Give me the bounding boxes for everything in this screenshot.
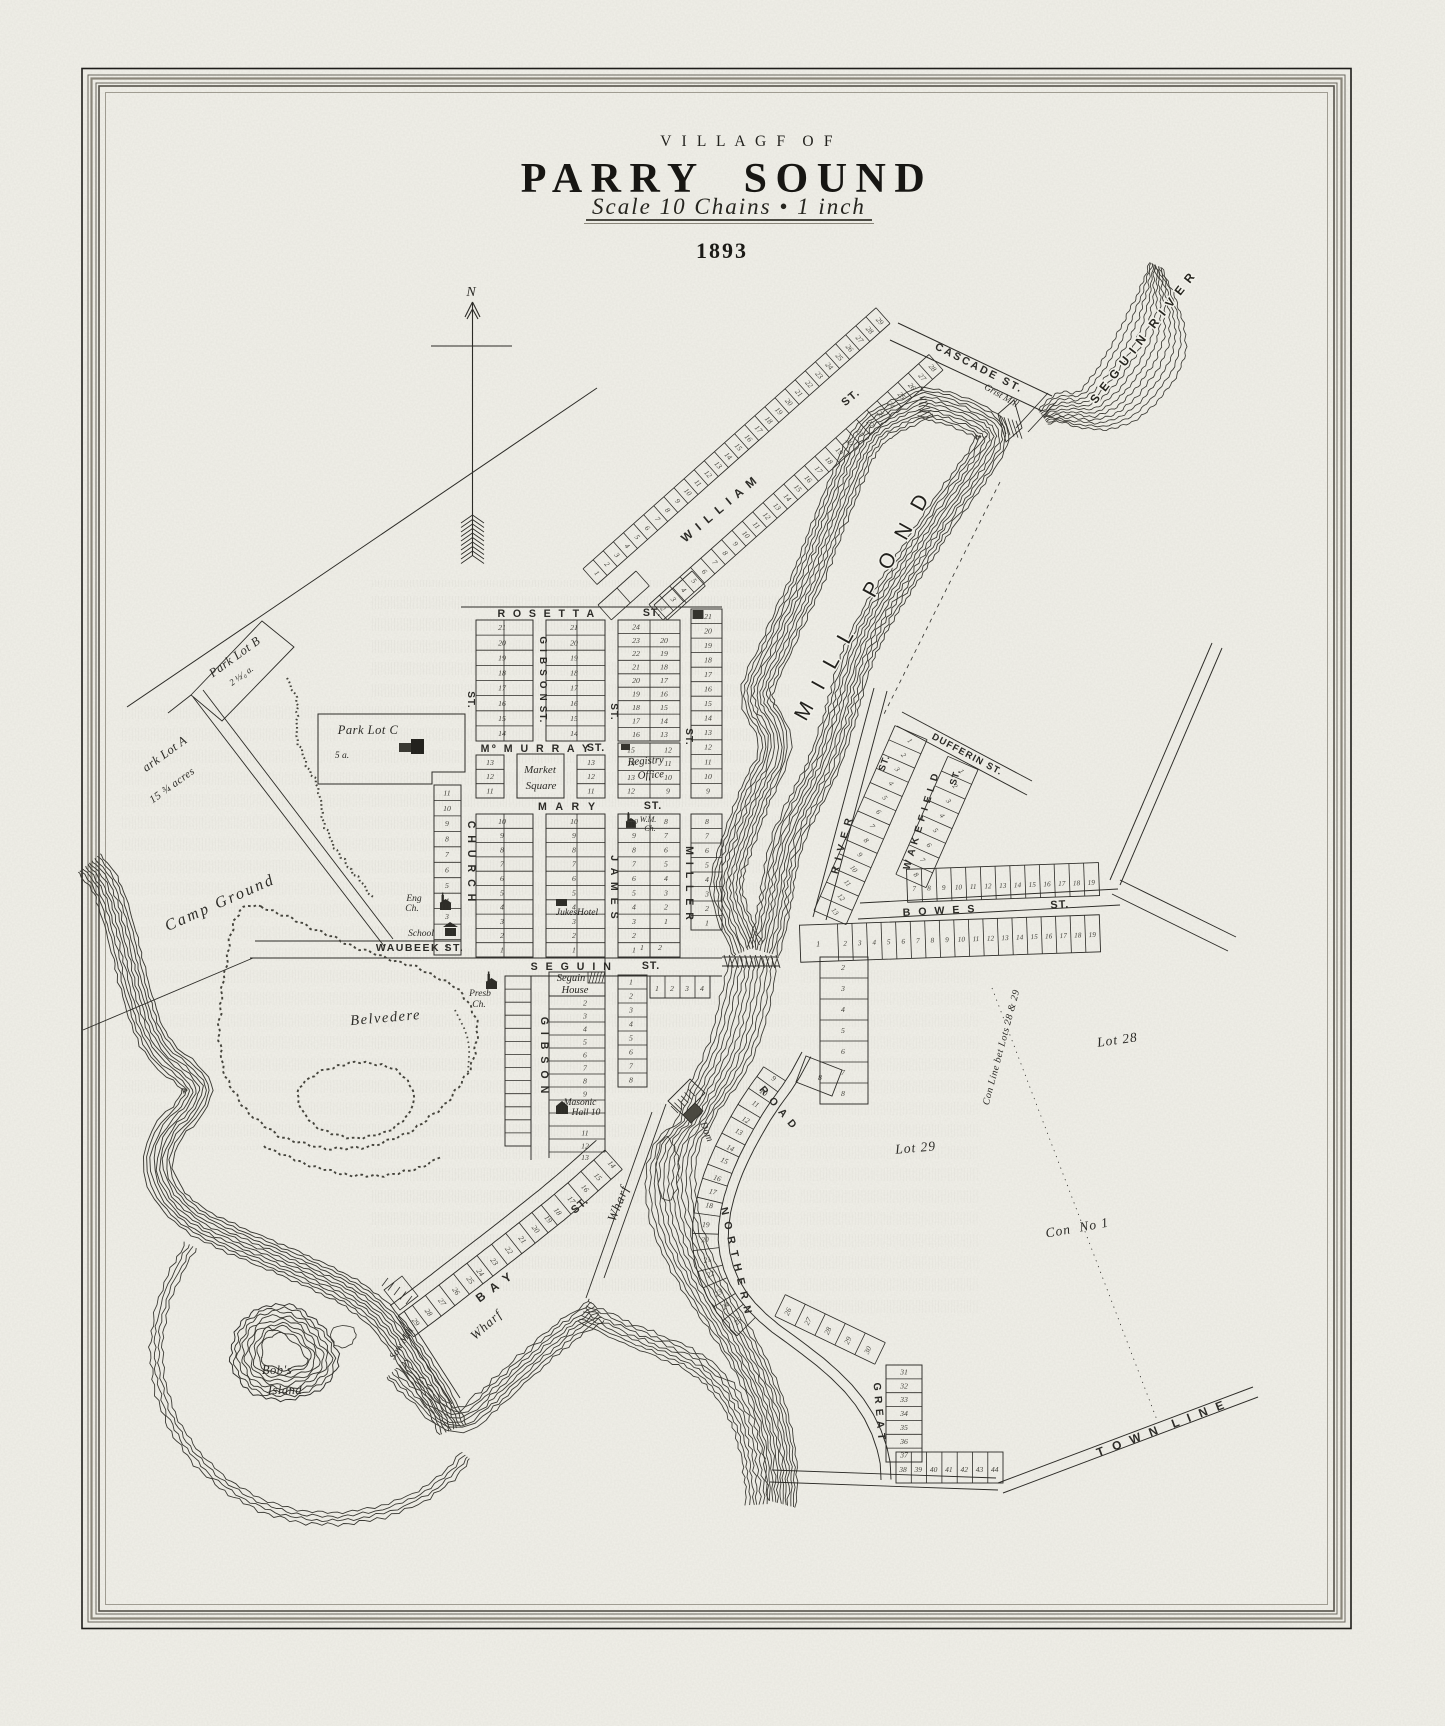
svg-text:33: 33 [899, 1395, 908, 1404]
svg-text:34: 34 [899, 1409, 908, 1418]
svg-text:16: 16 [1045, 932, 1053, 940]
svg-text:41: 41 [945, 1465, 953, 1474]
svg-text:36: 36 [899, 1437, 908, 1446]
svg-text:40: 40 [930, 1465, 938, 1474]
svg-text:17: 17 [1058, 880, 1066, 888]
svg-text:39: 39 [914, 1465, 923, 1474]
svg-text:15: 15 [1029, 881, 1037, 889]
svg-text:1: 1 [816, 940, 820, 949]
svg-text:35: 35 [899, 1423, 908, 1432]
svg-text:13: 13 [1001, 934, 1009, 942]
svg-text:9: 9 [945, 936, 949, 944]
svg-text:12: 12 [984, 882, 992, 890]
svg-text:16: 16 [1043, 880, 1051, 888]
svg-text:Island: Island [267, 1383, 303, 1397]
svg-text:12: 12 [987, 934, 995, 942]
svg-text:31: 31 [899, 1368, 908, 1377]
svg-text:19: 19 [1088, 879, 1096, 887]
svg-text:3: 3 [857, 939, 862, 947]
svg-text:13: 13 [999, 882, 1007, 890]
svg-text:V I L L A G F O F: V I L L A G F O F [660, 133, 835, 150]
svg-text:42: 42 [960, 1465, 968, 1474]
svg-text:8: 8 [927, 884, 931, 892]
svg-text:38: 38 [898, 1465, 907, 1474]
svg-text:5: 5 [887, 938, 891, 946]
svg-text:8: 8 [930, 937, 934, 945]
svg-text:14: 14 [1016, 933, 1024, 941]
svg-text:10: 10 [955, 883, 963, 891]
svg-text:Scale 10 Chains • 1 inch: Scale 10 Chains • 1 inch [592, 194, 866, 219]
svg-text:18: 18 [1073, 879, 1081, 887]
svg-text:ST.: ST. [1050, 899, 1070, 912]
svg-text:1893: 1893 [696, 238, 748, 263]
svg-text:32: 32 [899, 1381, 908, 1390]
svg-text:Bob's: Bob's [262, 1363, 292, 1377]
svg-text:4: 4 [872, 939, 876, 947]
svg-text:N: N [465, 285, 476, 300]
svg-text:15: 15 [1030, 933, 1038, 941]
svg-text:9: 9 [942, 884, 946, 892]
svg-text:11: 11 [973, 935, 980, 943]
svg-text:6: 6 [901, 938, 905, 946]
svg-text:17: 17 [1060, 932, 1068, 940]
svg-text:18: 18 [1074, 931, 1082, 939]
svg-text:10: 10 [958, 935, 966, 943]
svg-text:11: 11 [970, 883, 977, 891]
svg-text:44: 44 [991, 1465, 999, 1474]
svg-text:19: 19 [1089, 931, 1097, 939]
svg-text:14: 14 [1014, 881, 1022, 889]
svg-text:43: 43 [976, 1465, 984, 1474]
